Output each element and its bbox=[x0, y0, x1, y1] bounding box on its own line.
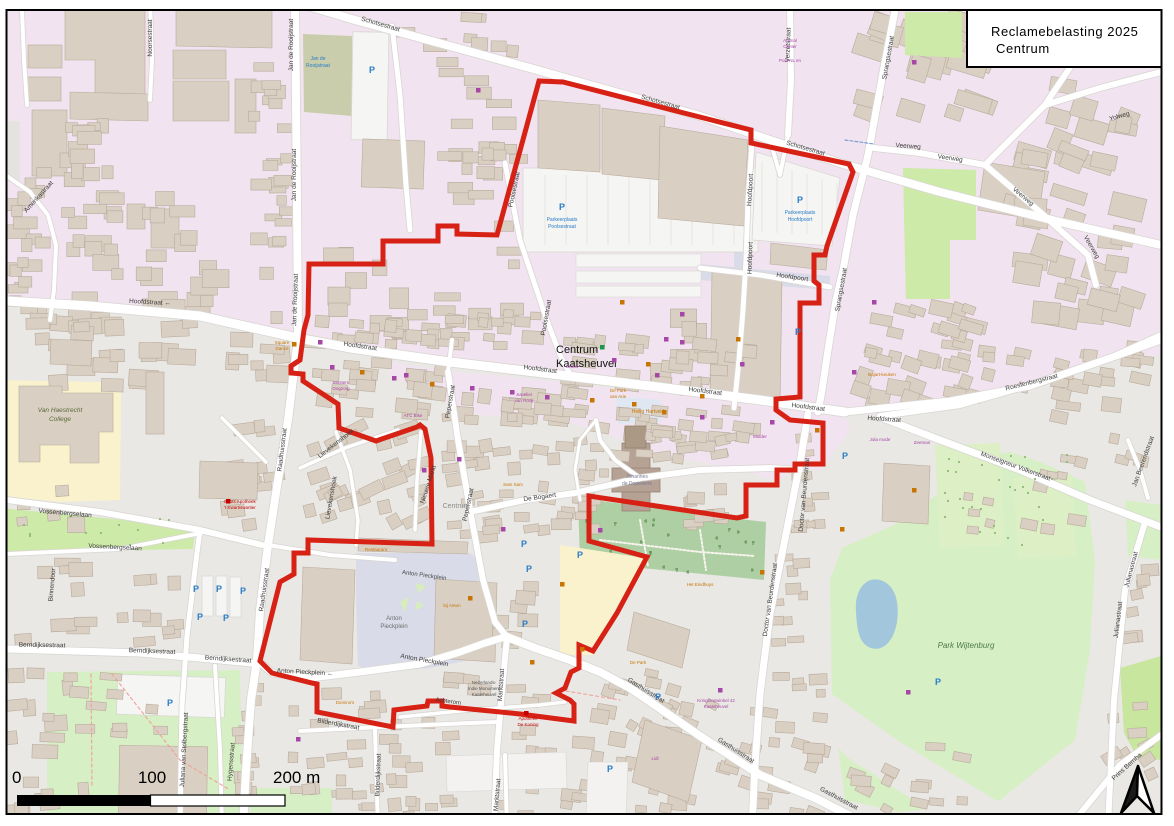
svg-text:0: 0 bbox=[12, 768, 21, 787]
svg-text:Restaurant: Restaurant bbox=[365, 547, 388, 552]
svg-text:Center: Center bbox=[783, 44, 797, 49]
svg-text:Jan de Rooijstraat: Jan de Rooijstraat bbox=[288, 19, 295, 72]
svg-text:Post NL en: Post NL en bbox=[779, 58, 802, 63]
svg-text:Kringloopwinkel 42: Kringloopwinkel 42 bbox=[697, 698, 735, 703]
svg-text:Park Wijtenburg: Park Wijtenburg bbox=[938, 641, 995, 650]
svg-text:P: P bbox=[223, 613, 229, 623]
svg-text:'t Kwartiswartier: 't Kwartiswartier bbox=[224, 505, 256, 510]
svg-text:Centrum: Centrum bbox=[443, 503, 470, 510]
svg-text:Reclamebelasting 2025: Reclamebelasting 2025 bbox=[991, 24, 1138, 39]
svg-text:Kaatsheuvel: Kaatsheuvel bbox=[472, 692, 497, 697]
svg-text:College: College bbox=[49, 416, 71, 423]
svg-text:Dance: Dance bbox=[275, 346, 289, 351]
svg-text:Jan de: Jan de bbox=[310, 56, 325, 62]
svg-text:Parkeerplaats: Parkeerplaats bbox=[785, 210, 816, 216]
svg-text:P: P bbox=[522, 619, 528, 629]
svg-text:P: P bbox=[797, 195, 803, 205]
svg-text:Sam Sam: Sam Sam bbox=[503, 482, 523, 487]
svg-text:Indie Monument: Indie Monument bbox=[468, 686, 501, 691]
svg-text:Centrum: Centrum bbox=[996, 41, 1050, 56]
svg-text:Anton: Anton bbox=[386, 616, 402, 622]
svg-text:P: P bbox=[197, 612, 203, 622]
svg-text:P: P bbox=[655, 692, 661, 702]
svg-text:Nederlands-: Nederlands- bbox=[472, 680, 497, 685]
svg-text:P: P bbox=[526, 564, 532, 574]
svg-text:Musters: Musters bbox=[333, 380, 350, 385]
svg-text:P: P bbox=[795, 327, 801, 337]
svg-text:P: P bbox=[935, 677, 941, 687]
svg-text:van Arie: van Arie bbox=[610, 394, 627, 399]
svg-text:Johannes: Johannes bbox=[626, 474, 648, 480]
svg-text:P: P bbox=[559, 202, 565, 212]
svg-text:Oogzorg: Oogzorg bbox=[332, 386, 350, 391]
svg-text:Het Eindhuys: Het Eindhuys bbox=[687, 582, 715, 587]
svg-text:P: P bbox=[240, 586, 246, 596]
svg-text:P: P bbox=[369, 65, 375, 75]
svg-text:P: P bbox=[607, 764, 613, 774]
svg-text:ATC Bike: ATC Bike bbox=[404, 413, 423, 418]
svg-text:De Koning: De Koning bbox=[517, 722, 539, 727]
svg-text:200 m: 200 m bbox=[273, 768, 320, 787]
svg-text:Domino's: Domino's bbox=[336, 700, 355, 705]
svg-text:Bruna: Bruna bbox=[566, 364, 579, 369]
svg-text:Bilderdijkstraat: Bilderdijkstraat bbox=[374, 753, 382, 796]
svg-text:P: P bbox=[577, 550, 583, 560]
svg-text:Jola mode: Jola mode bbox=[870, 437, 891, 442]
svg-text:Rooijstraat: Rooijstraat bbox=[306, 63, 331, 69]
svg-text:bij Anton: bij Anton bbox=[443, 603, 461, 608]
svg-text:Van Haestrecht: Van Haestrecht bbox=[38, 407, 84, 414]
svg-text:Parkeerplaats: Parkeerplaats bbox=[547, 217, 578, 223]
svg-text:Apotheek: Apotheek bbox=[518, 716, 538, 721]
svg-text:Zeeman: Zeeman bbox=[914, 440, 931, 445]
svg-text:P: P bbox=[167, 698, 173, 708]
svg-text:Hoofdpoort: Hoofdpoort bbox=[788, 217, 813, 223]
svg-text:P: P bbox=[193, 584, 199, 594]
svg-text:Hoofdpoort: Hoofdpoort bbox=[746, 242, 754, 275]
svg-text:Bojart-keuken: Bojart-keuken bbox=[868, 372, 896, 377]
svg-text:Square: Square bbox=[275, 340, 290, 345]
svg-text:Juwelier: Juwelier bbox=[516, 392, 533, 397]
svg-text:Muider: Muider bbox=[753, 434, 767, 439]
svg-text:P: P bbox=[521, 539, 527, 549]
svg-text:Poolsestraat: Poolsestraat bbox=[548, 224, 576, 230]
svg-text:Berndijksestraat: Berndijksestraat bbox=[19, 642, 66, 650]
svg-text:Boots Apotheek: Boots Apotheek bbox=[224, 499, 256, 504]
svg-text:100: 100 bbox=[138, 768, 166, 787]
svg-text:Heilig Hartveld: Heilig Hartveld bbox=[632, 409, 665, 415]
svg-text:Kaatsheuvel: Kaatsheuvel bbox=[704, 704, 729, 709]
svg-text:Lidl: Lidl bbox=[651, 756, 658, 761]
svg-text:De Park: De Park bbox=[610, 388, 627, 393]
svg-text:P: P bbox=[216, 584, 222, 594]
svg-text:Animal: Animal bbox=[783, 38, 797, 43]
svg-text:Pieckplein: Pieckplein bbox=[380, 624, 407, 630]
svg-text:Centrum: Centrum bbox=[556, 344, 598, 356]
svg-text:de Doperkerk: de Doperkerk bbox=[622, 481, 653, 487]
svg-text:Jan de Rooijstraat: Jan de Rooijstraat bbox=[291, 149, 298, 202]
svg-text:P: P bbox=[842, 451, 848, 461]
svg-text:Noorsestraat: Noorsestraat bbox=[147, 19, 154, 56]
svg-text:van Rooij: van Rooij bbox=[515, 398, 534, 403]
svg-text:De Park: De Park bbox=[630, 660, 647, 665]
